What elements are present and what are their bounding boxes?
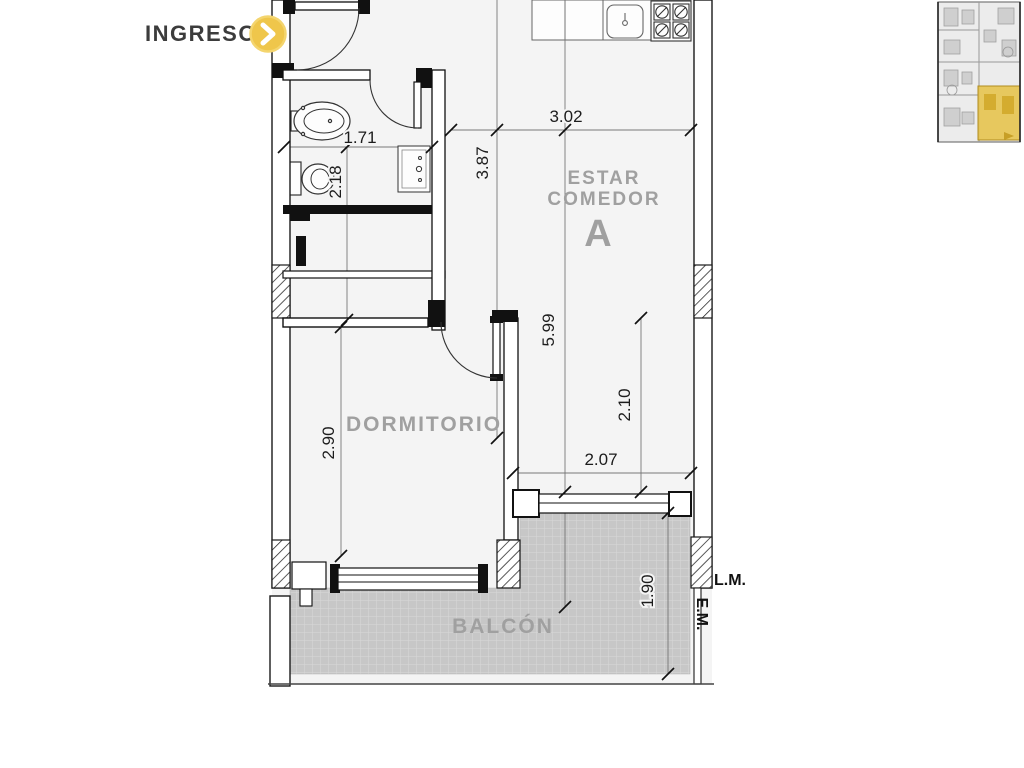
lm-label: L.M. [714,572,746,589]
dim-balcony-depth: 1.90 [638,574,657,607]
dim-living-depth: 3.87 [473,146,492,179]
dim-unit-depth: 5.99 [539,313,558,346]
dim-living-width: 2.10 [615,388,634,421]
kitchen-sink-icon [607,5,643,38]
dim-bath-depth: 2.18 [326,165,345,198]
room-label-comedor: COMEDOR [547,189,660,210]
room-label-dormitorio: DORMITORIO [346,413,502,436]
room-label-estar: ESTAR [568,168,641,189]
dim-bedroom-width: 2.90 [319,426,338,459]
dim-bath-width: 1.71 [343,128,376,147]
room-label-balcon: BALCÓN [452,614,554,638]
floor-plan-svg: 1.71 2.18 3.02 3.87 5.99 2.10 2.07 2.90 … [0,0,1024,768]
ingreso-label: INGRESO [145,21,257,46]
vanity-icon [398,146,430,192]
living-window [513,490,691,517]
unit-letter: A [584,213,613,255]
dim-balcony-door-width: 2.07 [584,450,617,469]
em-label: E.M. [693,598,710,631]
dim-kitchen-width: 3.02 [549,107,582,126]
ingreso-arrow-icon[interactable] [251,17,286,52]
floorplan-page: 1.71 2.18 3.02 3.87 5.99 2.10 2.07 2.90 … [0,0,1024,768]
stove-icon [651,1,691,41]
keyplan-minimap [938,2,1020,142]
